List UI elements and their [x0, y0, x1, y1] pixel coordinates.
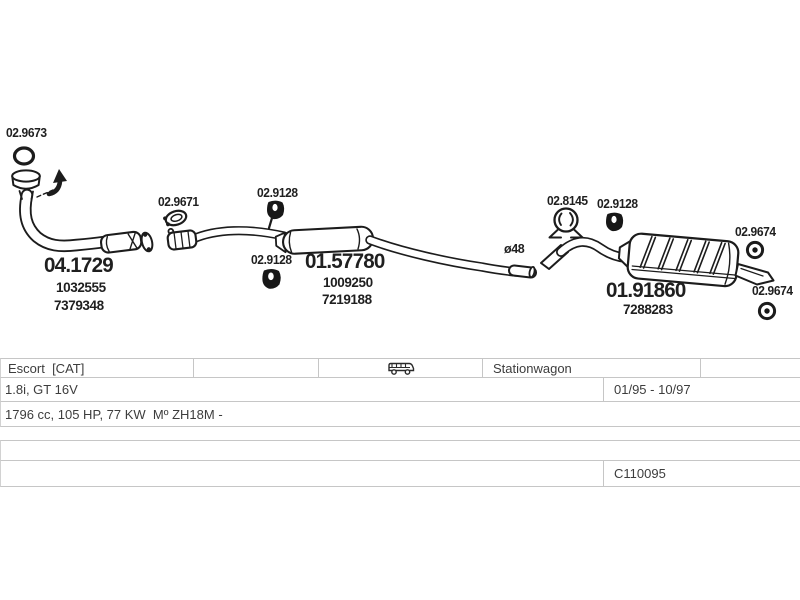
- part-label-gasket: 02.9673: [6, 127, 47, 140]
- rubber-hanger-icon: [606, 213, 623, 231]
- oe-number: 1032555: [56, 281, 106, 295]
- donut-mount-icon: [747, 242, 762, 257]
- table-row-blank: [0, 440, 800, 461]
- oe-number: 7379348: [54, 299, 104, 313]
- part-label-hanger: 02.9128: [597, 198, 638, 211]
- pipe-diameter-note: ø48: [504, 242, 524, 255]
- van-icon: [387, 361, 415, 376]
- table-row-spec: 1796 cc, 105 HP, 77 KW Mº ZH18M -: [0, 402, 800, 427]
- coupler-sleeve-drawing: [167, 226, 197, 250]
- table-row-code: C110095: [0, 461, 800, 487]
- engine-spec-cell: 1796 cc, 105 HP, 77 KW Mº ZH18M -: [1, 402, 800, 426]
- body-type-cell: Stationwagon: [483, 359, 701, 377]
- oe-number: 1009250: [323, 276, 373, 290]
- part-label-rear-mount: 02.9674: [752, 285, 793, 298]
- part-label-clamp: 02.9671: [158, 196, 199, 209]
- empty-cell: [194, 359, 319, 377]
- part-label-front-pipe: 04.1729: [44, 255, 113, 276]
- empty-cell: [1, 461, 604, 486]
- gasket-ring-drawing: [15, 148, 34, 164]
- rubber-hanger-icon: [267, 201, 284, 219]
- part-label-rear-silencer: 01.91860: [606, 280, 686, 301]
- oe-number: 7288283: [623, 303, 673, 317]
- part-label-rear-mount: 02.9674: [735, 226, 776, 239]
- rubber-hanger-icon: [262, 269, 280, 289]
- tail-tip-drawing: [736, 264, 774, 285]
- part-label-centre-silencer: 01.57780: [305, 251, 385, 272]
- vehicle-icon-cell: [319, 359, 483, 377]
- empty-cell: [1, 441, 800, 460]
- oe-number: 7219188: [322, 293, 372, 307]
- clamp-drawing: [162, 208, 188, 228]
- exhaust-catalog-page: 02.9673 04.1729 1032555 7379348 02.9671 …: [0, 0, 800, 600]
- bracket-mount-icon: [550, 209, 583, 238]
- model-cell: Escort [CAT]: [1, 359, 194, 377]
- part-label-hanger: 02.9128: [251, 254, 292, 267]
- joint-flange-drawing: [140, 231, 154, 252]
- part-label-bracket-mount: 02.8145: [547, 195, 588, 208]
- table-row-engine: 1.8i, GT 16V 01/95 - 10/97: [0, 378, 800, 402]
- catalyst-drawing: [100, 231, 142, 253]
- part-label-hanger: 02.9128: [257, 187, 298, 200]
- engine-cell: 1.8i, GT 16V: [1, 378, 604, 401]
- catalog-code-cell: C110095: [604, 461, 800, 486]
- build-period-cell: 01/95 - 10/97: [604, 378, 800, 401]
- table-row-model: Escort [CAT] Stationwagon: [0, 358, 800, 378]
- empty-cell: [701, 359, 800, 377]
- donut-mount-icon: [759, 303, 774, 318]
